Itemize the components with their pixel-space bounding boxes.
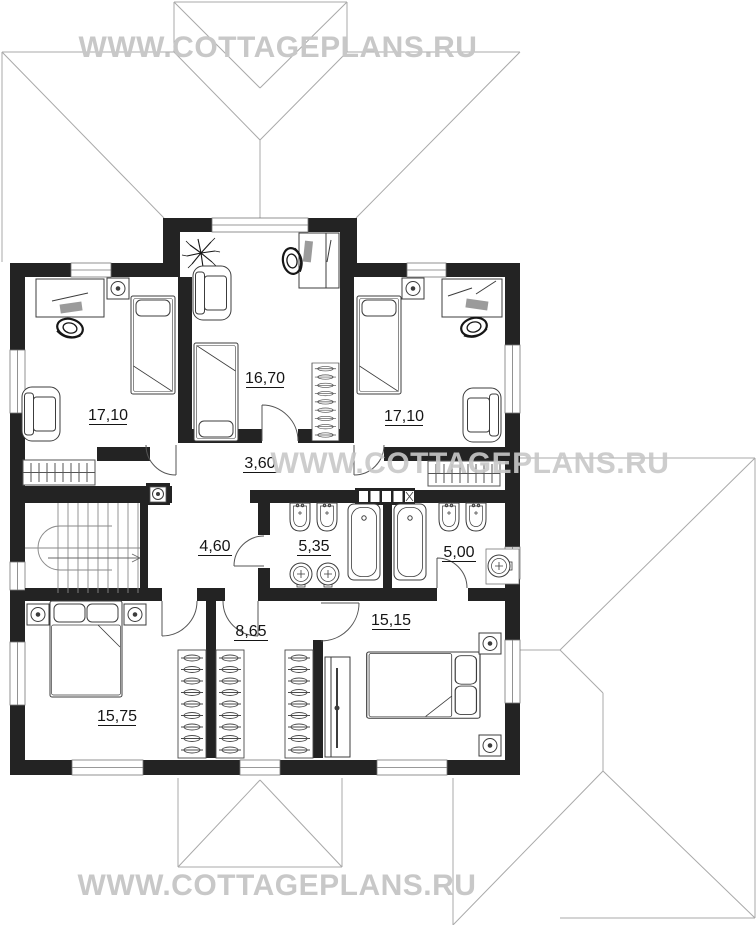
area-label-bathroom-right: 5,00 — [443, 544, 474, 561]
bathtub-icon — [394, 504, 426, 580]
roof-bottom-porch — [178, 778, 342, 867]
area-label-bedroom-top-right: 17,10 — [384, 408, 424, 425]
vent-block-icon — [355, 488, 415, 505]
bedroom-bottom-left-furniture — [27, 601, 206, 758]
bathtub-icon — [348, 504, 380, 580]
window — [212, 218, 308, 232]
area-label-closet: 8,65 — [235, 623, 266, 640]
window — [71, 263, 111, 277]
stair-direction-arrow — [48, 554, 140, 562]
window — [407, 263, 446, 277]
area-label-bedroom-bottom-left: 15,75 — [97, 708, 137, 725]
window — [10, 642, 25, 705]
desk — [299, 233, 339, 288]
area-label-hall: 4,60 — [199, 538, 230, 555]
double-bed — [50, 601, 122, 697]
nightstand-with-lamp — [402, 278, 424, 299]
radiator-icon — [23, 460, 95, 485]
nightstand-with-lamp — [124, 604, 146, 625]
plant-icon — [182, 238, 220, 268]
bedroom-top-center-furniture — [182, 233, 339, 441]
nightstand-with-lamp — [479, 735, 501, 756]
watermark-top: WWW.COTTAGEPLANS.RU — [79, 31, 478, 64]
window — [240, 760, 280, 775]
window — [505, 640, 520, 703]
staircase — [25, 503, 140, 593]
door-bedroom-bottom-left — [162, 601, 197, 636]
window — [10, 562, 25, 590]
area-label-bedroom-top-left: 17,10 — [88, 407, 128, 424]
single-bed — [194, 343, 238, 441]
double-bed — [367, 652, 480, 718]
vent-shaft-icon — [146, 483, 170, 505]
floor-plan-image: 17,10 16,70 17,10 3,60 4,60 5,35 5,00 15… — [0, 0, 756, 925]
door-bedroom-top-left — [146, 445, 176, 475]
floor-plan-canvas: 17,10 16,70 17,10 3,60 4,60 5,35 5,00 15… — [0, 0, 756, 925]
window — [505, 345, 520, 413]
desk — [36, 279, 104, 317]
round-basin-icon — [290, 563, 312, 587]
round-basin-icon — [317, 563, 339, 587]
area-label-bedroom-bottom-right: 15,15 — [371, 612, 411, 629]
door-bathroom-right — [437, 558, 467, 588]
door-bedroom-bottom-right — [321, 603, 359, 641]
bedroom-bottom-right-furniture — [325, 633, 501, 757]
door-bathroom-left — [234, 536, 264, 566]
desk-chair-icon — [459, 315, 489, 339]
nightstand-with-lamp — [479, 633, 501, 654]
watermark-middle: WWW.COTTAGEPLANS.RU — [271, 447, 670, 480]
area-label-bathroom-left: 5,35 — [298, 538, 329, 555]
door-bedroom-top-center — [262, 405, 298, 441]
watermark-bottom: WWW.COTTAGEPLANS.RU — [78, 869, 477, 902]
armchair — [193, 266, 231, 320]
desk-chair-icon — [55, 316, 85, 340]
wardrobe-icon — [216, 650, 244, 758]
wardrobe-icon — [312, 363, 339, 441]
closet-furniture — [216, 650, 313, 758]
washbasin-icon — [439, 503, 459, 531]
nightstand-with-lamp — [107, 278, 129, 299]
window — [377, 760, 447, 775]
washbasin-icon — [290, 503, 310, 531]
area-label-bedroom-top-center: 16,70 — [245, 370, 285, 387]
single-bed — [357, 296, 401, 394]
armchair — [22, 387, 60, 441]
armchair — [463, 388, 501, 442]
desk — [442, 279, 502, 317]
wardrobe-icon — [178, 650, 206, 758]
washbasin-icon — [466, 503, 486, 531]
washbasin-icon — [317, 503, 337, 531]
single-bed — [131, 296, 175, 394]
nightstand-with-lamp — [27, 604, 49, 625]
wardrobe-icon — [285, 650, 313, 758]
roof-right-wing — [453, 458, 755, 925]
window — [72, 760, 143, 775]
mirror-cabinet — [325, 657, 350, 757]
